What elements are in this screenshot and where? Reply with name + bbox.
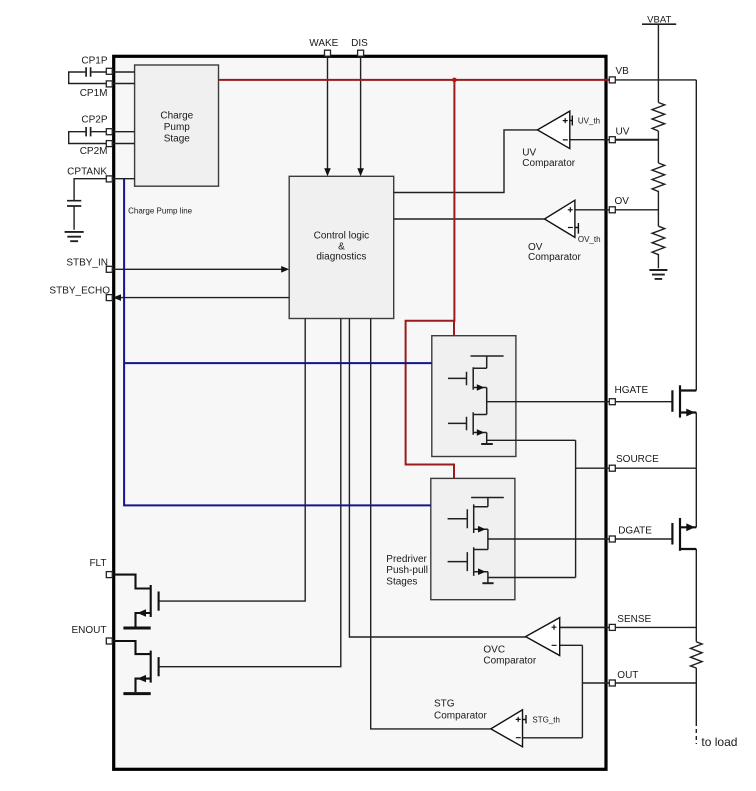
svg-text:UV_th: UV_th: [578, 116, 600, 125]
svg-text:Control logic: Control logic: [314, 231, 370, 242]
svg-text:DIS: DIS: [351, 38, 368, 49]
svg-text:OV: OV: [615, 196, 630, 207]
svg-text:OVC: OVC: [483, 644, 505, 655]
svg-text:VBAT: VBAT: [647, 15, 671, 26]
svg-text:SENSE: SENSE: [617, 614, 651, 625]
svg-text:to load: to load: [701, 735, 737, 749]
svg-text:STBY_IN: STBY_IN: [66, 258, 108, 269]
svg-text:Predriver: Predriver: [386, 554, 427, 565]
svg-text:diagnostics: diagnostics: [316, 252, 366, 263]
svg-text:VB: VB: [616, 66, 630, 77]
svg-text:STG_th: STG_th: [532, 715, 560, 724]
svg-text:Comparator: Comparator: [434, 710, 487, 721]
svg-text:CP2M: CP2M: [80, 146, 108, 157]
svg-text:Stages: Stages: [386, 577, 417, 588]
svg-text:DGATE: DGATE: [618, 526, 652, 537]
svg-text:ENOUT: ENOUT: [72, 625, 107, 636]
svg-text:SOURCE: SOURCE: [616, 454, 659, 465]
svg-text:FLT: FLT: [89, 558, 106, 569]
svg-text:HGATE: HGATE: [615, 385, 649, 396]
svg-text:OUT: OUT: [617, 670, 638, 681]
svg-text:OV_th: OV_th: [578, 235, 601, 244]
svg-text:&: &: [338, 241, 345, 252]
svg-text:CPTANK: CPTANK: [67, 166, 107, 177]
svg-text:UV: UV: [616, 126, 630, 137]
svg-text:Comparator: Comparator: [483, 655, 536, 666]
svg-text:Comparator: Comparator: [528, 252, 581, 263]
svg-text:CP2P: CP2P: [81, 115, 107, 126]
svg-text:Stage: Stage: [164, 133, 191, 144]
svg-text:Comparator: Comparator: [522, 158, 575, 169]
svg-text:WAKE: WAKE: [309, 38, 338, 49]
svg-text:STG: STG: [434, 698, 455, 709]
svg-text:Pump: Pump: [164, 122, 191, 133]
svg-text:Charge Pump line: Charge Pump line: [128, 207, 193, 216]
svg-text:CP1M: CP1M: [80, 88, 108, 99]
svg-text:STBY_ECHO: STBY_ECHO: [49, 285, 110, 296]
svg-text:Push-pull: Push-pull: [386, 565, 428, 576]
svg-text:CP1P: CP1P: [81, 56, 107, 67]
svg-text:Charge: Charge: [160, 110, 193, 121]
